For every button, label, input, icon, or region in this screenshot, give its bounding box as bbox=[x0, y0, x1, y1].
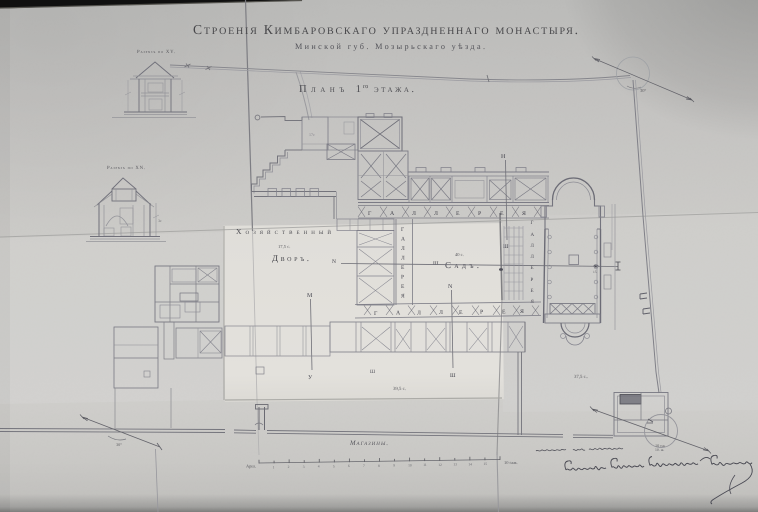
svg-text:14: 14 bbox=[468, 462, 472, 466]
svg-text:Н: Н bbox=[501, 154, 506, 160]
svg-text:Е: Е bbox=[531, 288, 534, 294]
svg-text:Ш: Ш bbox=[433, 261, 439, 267]
svg-text:Разрѣзъ по XY.: Разрѣзъ по XY. bbox=[137, 49, 175, 55]
svg-text:Е: Е bbox=[502, 309, 506, 315]
svg-text:Р: Р bbox=[478, 211, 481, 217]
svg-text:15: 15 bbox=[593, 270, 597, 274]
svg-text:39,5 с.: 39,5 с. bbox=[393, 386, 406, 392]
svg-text:Разрѣзъ по XN.: Разрѣзъ по XN. bbox=[107, 165, 145, 171]
svg-text:М: М bbox=[307, 293, 313, 299]
svg-text:Я: Я bbox=[520, 309, 524, 315]
svg-text:Л: Л bbox=[531, 243, 535, 249]
svg-text:Ш: Ш bbox=[450, 373, 456, 379]
svg-text:Дворъ.: Дворъ. bbox=[272, 253, 309, 263]
svg-text:Е: Е bbox=[500, 211, 504, 217]
svg-text:11: 11 bbox=[423, 463, 427, 467]
svg-text:А: А bbox=[401, 237, 405, 243]
svg-text:Е: Е bbox=[456, 211, 460, 217]
svg-text:Л: Л bbox=[417, 310, 421, 316]
svg-text:Р: Р bbox=[531, 277, 534, 283]
svg-text:10: 10 bbox=[408, 463, 412, 467]
svg-text:Строенія Кимбаровскаго упраздн: Строенія Кимбаровскаго упраздненнаго мон… bbox=[193, 22, 578, 37]
svg-text:Я: Я bbox=[522, 211, 526, 217]
svg-text:1: 1 bbox=[273, 465, 275, 469]
svg-text:9: 9 bbox=[393, 464, 395, 468]
svg-text:7: 7 bbox=[363, 464, 365, 468]
svg-text:13: 13 bbox=[453, 463, 457, 467]
svg-text:17с: 17с bbox=[309, 132, 315, 137]
svg-text:Р: Р bbox=[401, 275, 404, 281]
svg-text:6: 6 bbox=[348, 464, 350, 468]
svg-text:Ш: Ш bbox=[370, 369, 375, 375]
svg-text:Г: Г bbox=[401, 227, 404, 233]
svg-text:Р: Р bbox=[480, 310, 483, 316]
svg-text:Е: Е bbox=[459, 310, 463, 316]
svg-text:Л: Л bbox=[439, 310, 443, 316]
svg-text:2: 2 bbox=[288, 465, 290, 469]
svg-text:Я: Я bbox=[401, 294, 405, 300]
svg-text:Л: Л bbox=[401, 256, 405, 262]
svg-text:3: 3 bbox=[303, 465, 305, 469]
svg-text:Магазины.: Магазины. bbox=[349, 440, 388, 447]
svg-text:12: 12 bbox=[438, 463, 442, 467]
svg-text:3с: 3с bbox=[158, 219, 162, 223]
svg-text:Л: Л bbox=[531, 254, 535, 260]
svg-text:30°: 30° bbox=[116, 442, 122, 447]
svg-text:10. ж.: 10. ж. bbox=[655, 448, 664, 452]
svg-text:10 саж.: 10 саж. bbox=[504, 460, 518, 465]
svg-text:А: А bbox=[531, 232, 535, 238]
svg-text:Е: Е bbox=[531, 265, 534, 271]
svg-text:Л: Л bbox=[412, 211, 416, 217]
svg-text:15: 15 bbox=[483, 462, 487, 466]
svg-text:40 с.: 40 с. bbox=[455, 252, 464, 257]
svg-text:N: N bbox=[448, 284, 453, 290]
svg-text:Л: Л bbox=[434, 211, 438, 217]
svg-text:го: го bbox=[363, 84, 368, 90]
svg-text:4: 4 bbox=[318, 465, 320, 469]
svg-text:30°: 30° bbox=[640, 88, 647, 93]
svg-text:Арш.: Арш. bbox=[246, 464, 256, 469]
svg-text:Л: Л bbox=[401, 246, 405, 252]
svg-text:5: 5 bbox=[333, 464, 335, 468]
svg-text:8: 8 bbox=[378, 464, 380, 468]
svg-text:37,5 с..: 37,5 с.. bbox=[574, 374, 588, 380]
svg-text:17,5 с.: 17,5 с. bbox=[278, 244, 290, 249]
svg-text:Г: Г bbox=[531, 220, 534, 226]
svg-text:N: N bbox=[332, 259, 336, 265]
